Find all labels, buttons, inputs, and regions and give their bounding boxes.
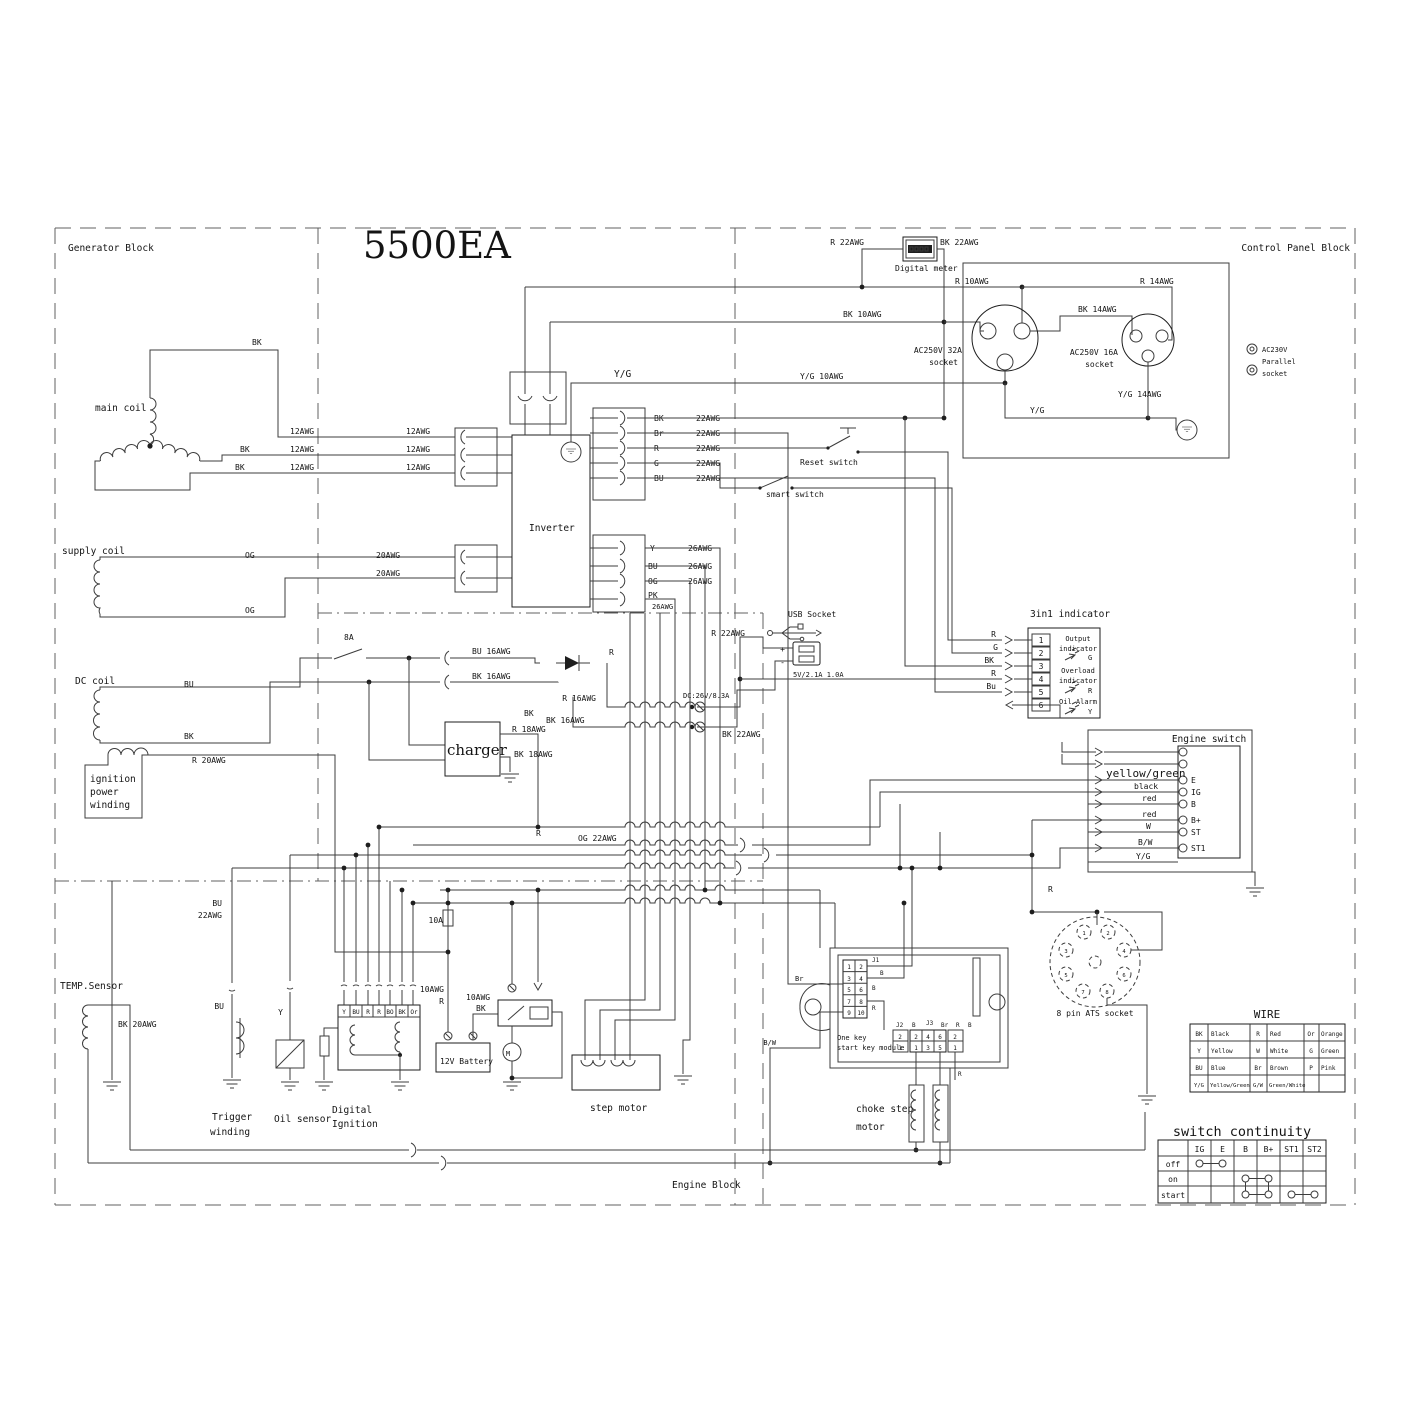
ats-socket-label: 8 pin ATS socket [1056,1009,1133,1018]
ignition-winding-label1: ignition [90,774,136,785]
digital-ignition-label1: Digital [332,1105,372,1116]
j1-cell: 6 [859,987,863,994]
wire-label: BU [184,680,194,689]
one-key-label2: start key module [837,1044,904,1052]
ign-terminal: R [366,1009,370,1016]
wire-label: 26AWG [688,577,712,586]
wire-label: BK [184,732,194,741]
inverter [510,287,1005,607]
wire-label: red [1142,794,1157,803]
main-coil-label: main coil [95,403,146,414]
choke-motor-label2: motor [856,1122,885,1133]
spark-component [315,1028,338,1090]
wire-label: BK 14AWG [1078,305,1117,314]
j3-cell: 3 [926,1045,930,1052]
trigger-winding-label2: winding [210,1127,250,1138]
j2-cell: 1 [898,1045,902,1052]
one-key-label1: One key [837,1034,867,1042]
j1-cell: 5 [847,987,851,994]
wire-label: 10AWG [466,993,490,1002]
wire-label: B/W [763,1039,776,1047]
wt-cell: Y/G [1194,1083,1204,1089]
socket-16a-label2: socket [1085,360,1114,369]
wire-label: 26AWG [652,603,673,611]
digital-meter-label: Digital meter [895,264,958,273]
j1-cell: 1 [847,964,851,971]
j3-cell: 2 [914,1034,918,1041]
terminal-label: E [1191,776,1196,785]
control-panel-block-label: Control Panel Block [1241,243,1350,254]
j2-cell: 2 [898,1034,902,1041]
dc-coil-label: DC coil [75,676,115,687]
wire-label: B [872,985,876,992]
engine-switch [1062,730,1264,896]
wt-cell: Brown [1270,1065,1288,1072]
wt-cell: BK [1195,1031,1203,1038]
ats-pin: 4 [1122,949,1126,955]
ct-col: IG [1195,1145,1205,1154]
ats-pin: 3 [1064,949,1067,955]
indicator-text: indicator [1059,677,1097,685]
wire-label: BK 22AWG [722,730,761,739]
ats-pin: 2 [1106,931,1109,937]
wire-label: R [991,669,996,678]
j1-cell: 10 [857,1010,865,1017]
ign-terminal: Y [342,1009,346,1016]
wire-label: Y [278,1008,283,1017]
wire-label: BK 18AWG [514,750,553,759]
parallel-socket [1247,344,1257,375]
indicator-pin: 1 [1039,636,1044,645]
wire-label: R [872,1005,876,1012]
supply-connector [455,545,512,592]
wire-label: 12AWG [290,427,314,436]
indicator-pin: 2 [1039,649,1044,658]
wire-label: Y/G [614,369,631,380]
indicator-led-r: R [1088,687,1093,695]
wire-label: R 16AWG [562,694,596,703]
wire-label: BU 16AWG [472,647,511,656]
usb-minus: - [780,658,785,667]
wt-cell: W [1256,1048,1260,1055]
wt-cell: Green [1321,1048,1339,1055]
wire-label: red [1142,810,1157,819]
wire-label: 20AWG [376,569,400,578]
socket-32a-label1: AC250V 32A [914,346,962,355]
one-key-module [768,866,1008,1166]
inverter-label: Inverter [529,523,575,534]
wire-label: B [968,1022,972,1029]
terminal-label: IG [1191,788,1201,797]
terminal-label: ST [1191,828,1201,837]
wire-label: BK [235,463,245,472]
wt-cell: Yellow [1211,1048,1233,1055]
wire-label: R 18AWG [512,725,546,734]
usb-socket-label: USB Socket [788,610,836,619]
parallel-socket-label2: Parallel [1262,358,1296,366]
smart-switch-label: smart switch [766,490,824,499]
digital-ignition-label2: Ignition [332,1119,378,1130]
digital-ignition [338,825,420,1090]
wire-label: BK [252,338,262,347]
wire-label: 20AWG [376,551,400,560]
ct-row: off [1166,1160,1181,1169]
wire-label: R [956,1022,960,1029]
supply-coil-label: supply coil [62,546,125,557]
usb-plus: + [780,645,785,654]
ats-socket [1030,910,1162,1104]
wire-label: OG [245,551,255,560]
indicator-pin: 3 [1039,662,1044,671]
wire-label: Y/G 14AWG [1118,390,1162,399]
usb-socket [697,624,1002,727]
wire-label: R 20AWG [192,756,226,765]
parallel-socket-label1: AC230V [1262,346,1288,354]
wire-label: G [993,643,998,652]
usb-spec-label: 5V/2.1A 1.0A [793,671,844,679]
wire-label: 12AWG [406,463,430,472]
wire-label: 12AWG [290,445,314,454]
wire-label: BK 20AWG [118,1020,157,1029]
wire-label: R [958,1071,962,1078]
trigger-winding [223,868,244,1088]
wire-label: BK 16AWG [546,716,585,725]
wire-label: 22AWG [198,911,222,920]
wire-label: R [439,997,444,1006]
step-motor [572,1055,660,1090]
wire-label: BK [984,656,994,665]
wire-label: Y/G [1136,852,1151,861]
terminal-label: B [1191,800,1196,809]
oil-sensor-label: Oil sensor [274,1114,331,1125]
ign-terminal: BK [398,1009,406,1016]
ignition-power-winding [85,748,448,952]
terminal-label: ST1 [1191,844,1206,853]
parallel-socket-label3: socket [1262,370,1287,378]
wire-label: BK 16AWG [472,672,511,681]
schematic-canvas: Generator Block Control Panel Block Engi… [0,0,1416,1416]
wire-label: B [912,1022,916,1029]
wire-table-title: WIRE [1254,1008,1281,1021]
wire-label: B/W [1138,838,1153,847]
ats-pin: 7 [1081,990,1084,996]
j1-cell: 7 [847,999,851,1006]
inverter-signal-connector [590,408,645,500]
j3-cell: 1 [914,1045,918,1052]
wire-label: R [609,648,614,657]
starter-motor-label: M [506,1050,510,1058]
j3-cell: 5 [938,1045,942,1052]
wire-label: BK [240,445,250,454]
fuse-8a-label: 8A [344,633,354,642]
wt-cell: Blue [1211,1065,1226,1072]
wire-label: 12AWG [290,463,314,472]
indicator-text: Overload [1061,667,1095,675]
choke-motor-label1: choke step [856,1104,913,1115]
wt-cell: Or [1307,1031,1315,1038]
continuity-title: switch continuity [1173,1124,1311,1140]
wire-label: 12AWG [406,427,430,436]
fuse-10a-label: 10A [429,916,444,925]
ct-col: B+ [1264,1145,1274,1154]
engine-block-label: Engine Block [672,1180,741,1191]
battery-label: 12V Battery [440,1057,493,1066]
wire-label: R 22AWG [711,629,745,638]
j3-cell: 4 [926,1034,930,1041]
wt-cell: BU [1195,1065,1203,1072]
socket-32a-label2: socket [929,358,958,367]
ats-pin: 6 [1122,973,1125,979]
wire-label: Y/G [1030,406,1045,415]
charger [445,722,538,827]
wire-label: 10AWG [420,985,444,994]
inverter-dc-connector [590,535,645,612]
wt-cell: Black [1211,1031,1229,1038]
j1-cell: 2 [859,964,863,971]
ct-col: ST1 [1284,1145,1299,1154]
wt-cell: R [1256,1031,1260,1038]
wire-label: R [991,630,996,639]
wt-cell: Y [1197,1048,1201,1055]
wt-cell: Br [1254,1065,1262,1072]
j1-cell: 4 [859,976,863,983]
wire-label: BU [214,1002,224,1011]
wire-label: B [880,970,884,977]
main-coil [95,350,455,490]
ct-row: start [1161,1191,1185,1200]
j2b-cell: 1 [953,1045,957,1052]
indicator-pin: 4 [1039,675,1044,684]
trigger-winding-label1: Trigger [212,1112,252,1123]
wt-cell: G [1309,1048,1313,1055]
j2b-cell: 2 [953,1034,957,1041]
wt-cell: P [1309,1065,1313,1072]
wt-cell: Red [1270,1031,1281,1038]
ignition-winding-label3: winding [90,800,130,811]
ign-terminal: R [377,1009,381,1016]
wire-label: R 10AWG [955,277,989,286]
indicator-title: 3in1 indicator [1030,609,1110,620]
ign-terminal: BO [386,1009,394,1016]
wire-label: OG 22AWG [578,834,617,843]
wire-label: black [1134,782,1158,791]
wire-label: R 22AWG [830,238,864,247]
wiring-diagram-page: Generator Block Control Panel Block Engi… [0,0,1416,1416]
main-connector [455,428,512,486]
wire-label: W [1146,822,1151,831]
ct-col: B [1243,1145,1248,1154]
wire-label: R 14AWG [1140,277,1174,286]
wire-label: R [1048,885,1053,894]
wire-bundle [232,548,1088,1084]
ct-col: E [1220,1145,1225,1154]
ct-row: on [1168,1175,1178,1184]
step-motor-label: step motor [590,1103,647,1114]
indicator-text: Oil Alarm [1059,698,1097,706]
socket-16a-label1: AC250V 16A [1070,348,1118,357]
j3-cell: 6 [938,1034,942,1041]
indicator-led-y: Y [1088,708,1093,716]
ats-pin: 8 [1105,990,1108,996]
j2-label: J2 [896,1022,904,1029]
ign-terminal: Or [410,1009,418,1016]
indicator-led-g: G [1088,654,1092,662]
ct-col: ST2 [1307,1145,1322,1154]
wire-label: BK 22AWG [940,238,979,247]
ignition-winding-label2: power [90,787,119,798]
j1-cell: 8 [859,999,863,1006]
ats-pin: 5 [1064,973,1067,979]
wt-cell: Green/White [1269,1083,1305,1089]
wire-label: Bu [986,682,996,691]
wire-label: Br [795,975,803,983]
j1-cell: 3 [847,976,851,983]
wt-cell: Yellow/Green [1210,1083,1250,1089]
wire-label: 12AWG [406,445,430,454]
wire-label: BK 10AWG [843,310,882,319]
socket-32a [972,305,1150,420]
ign-terminal: BU [352,1009,360,1016]
socket-16a [1122,314,1197,440]
indicator-pin: 5 [1039,688,1044,697]
wire-label: OG [245,606,255,615]
j1-label: J1 [872,957,880,964]
wire-label: BK [524,709,534,718]
supply-coil [94,557,455,617]
wire-label: yellow/green [1106,767,1185,780]
wt-cell: White [1270,1048,1288,1055]
page-title: 5500EA [363,224,512,267]
terminal-label: B+ [1191,816,1201,825]
temp-sensor-label: TEMP.Sensor [60,981,123,992]
oil-sensor [276,855,304,1090]
wt-cell: G/W [1253,1083,1264,1089]
wt-cell: Orange [1321,1031,1343,1038]
wt-cell: Pink [1321,1065,1336,1072]
j3-label: J3 [926,1020,934,1027]
wire-label: BK [476,1004,486,1013]
ats-pin: 1 [1082,931,1085,937]
reset-switch-label: Reset switch [800,458,858,467]
wire-label: Br [941,1022,949,1029]
wire-label: BU [212,899,222,908]
wire-label: R [536,829,541,838]
indicator-text: Output [1065,635,1090,643]
charger-label: charger [447,741,508,759]
indicator-text: indicator [1059,645,1097,653]
engine-switch-title: Engine switch [1172,734,1246,745]
generator-block-label: Generator Block [68,243,154,254]
wire-label: Y/G 10AWG [800,372,844,381]
j1-cell: 9 [847,1010,851,1017]
